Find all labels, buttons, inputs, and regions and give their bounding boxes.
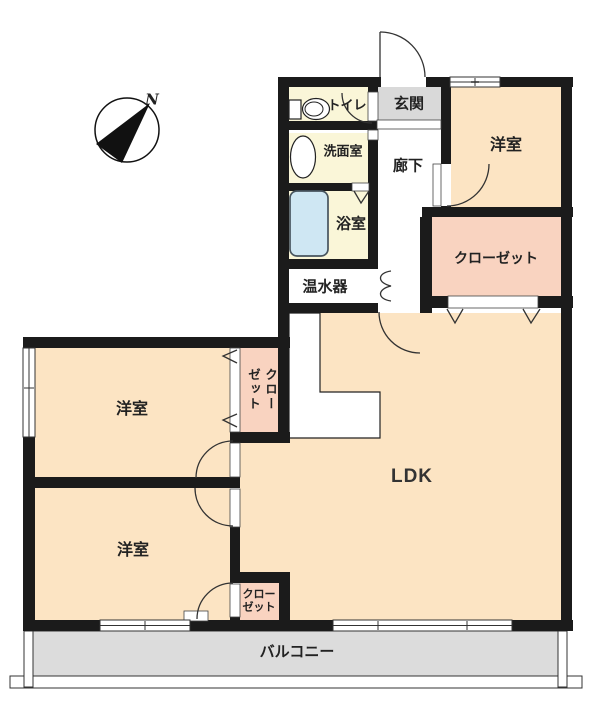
wall-segment <box>426 77 450 87</box>
wall-segment <box>512 620 573 631</box>
bathroom-door-opening <box>352 183 369 191</box>
wall-segment <box>23 437 35 631</box>
closet-sw-door-opening <box>230 584 240 617</box>
wall-segment <box>278 77 381 87</box>
entrance-step <box>377 120 441 129</box>
bedroom-west-door-opening <box>230 443 240 477</box>
wall-segment <box>23 620 100 631</box>
wall-segment <box>230 432 290 443</box>
label-washroom: 洗面室 <box>323 145 362 160</box>
wall-segment <box>368 140 378 259</box>
wall-segment <box>23 477 240 488</box>
compass-needle <box>96 103 150 163</box>
label-entrance: 玄関 <box>394 95 424 112</box>
toilet-door-opening <box>368 92 378 121</box>
label-water-heater: 温水器 <box>302 278 347 295</box>
sink-icon <box>291 136 316 178</box>
balcony-outer-rim <box>10 676 582 688</box>
washroom-door-opening <box>368 130 378 140</box>
wall-segment <box>278 259 378 269</box>
balcony-rail-right <box>558 631 567 687</box>
wall-segment <box>190 620 333 631</box>
bedroom-sw-door-opening <box>230 489 240 527</box>
wall-segment <box>278 303 378 313</box>
bedroom-ne-door-leaf <box>433 164 441 206</box>
wall-segment <box>432 296 448 308</box>
wall-segment <box>561 77 572 631</box>
wall-segment <box>538 296 573 308</box>
entrance-door-arc <box>380 32 425 77</box>
closet-right-opening <box>448 296 538 308</box>
toilet-icon <box>289 100 301 119</box>
wall-segment <box>288 183 352 191</box>
floor-plan: N トイレ 玄関 洗面室 廊下 浴室 温水器 洋室 クローゼット クローゼット … <box>0 0 606 723</box>
wall-segment <box>369 183 378 191</box>
label-balcony: バルコニー <box>260 643 335 660</box>
label-bedroom-sw: 洋室 <box>117 542 149 560</box>
compass-north-label: N <box>145 91 159 108</box>
wall-segment <box>422 207 573 217</box>
label-hallway: 廊下 <box>393 157 423 174</box>
balcony-rail-left <box>24 631 33 687</box>
wall-segment <box>441 87 451 164</box>
toilet-bowl-icon <box>303 99 330 120</box>
label-ldk: LDK <box>391 466 433 488</box>
water-heater-door-mark <box>381 271 392 301</box>
label-closet-right: クローゼット <box>454 250 538 266</box>
bathtub-icon <box>290 191 328 256</box>
wall-segment <box>23 337 290 348</box>
label-bedroom-west: 洋室 <box>116 401 148 419</box>
label-closet-west: クローゼット <box>244 365 278 415</box>
label-toilet: トイレ <box>327 99 366 114</box>
wall-segment <box>420 217 432 313</box>
label-bedroom-ne: 洋室 <box>490 137 522 155</box>
wall-segment <box>368 87 378 92</box>
floor-plan-canvas <box>0 0 606 723</box>
label-closet-sw: クロー ゼット <box>243 588 276 613</box>
room-ldk-left-fill <box>240 443 289 572</box>
label-bathroom: 浴室 <box>336 215 366 232</box>
